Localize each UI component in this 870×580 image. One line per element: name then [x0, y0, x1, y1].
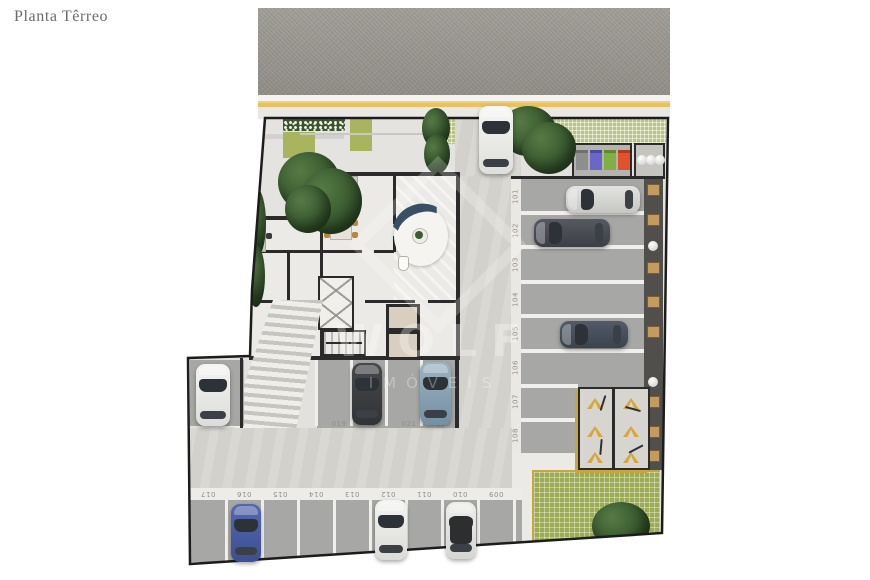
car-space-012	[375, 500, 407, 560]
floor-plan-page: Planta Têrreo	[0, 0, 870, 580]
tree	[285, 185, 331, 233]
car-space-022	[420, 362, 451, 425]
tree	[522, 122, 576, 174]
lot-outline	[0, 0, 870, 580]
car-space-105	[560, 321, 628, 348]
car-space-016	[231, 504, 261, 562]
car-space-101	[566, 186, 640, 213]
car-space-010	[446, 502, 476, 559]
car-entering	[479, 106, 513, 174]
tree	[424, 134, 450, 174]
car-space-018	[196, 364, 230, 426]
car-black-roof	[450, 516, 472, 544]
car-space-020	[352, 363, 382, 425]
car-space-102	[534, 219, 610, 247]
